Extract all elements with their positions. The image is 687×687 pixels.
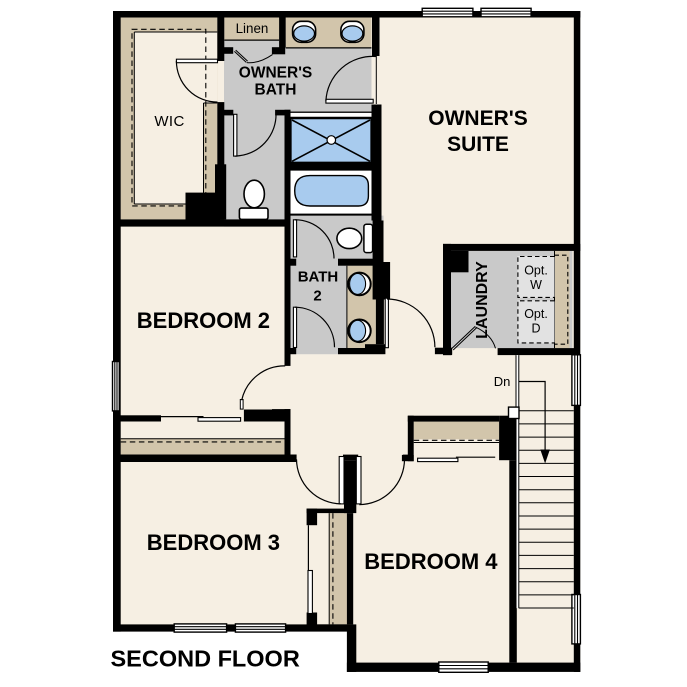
svg-text:BEDROOM 4: BEDROOM 4 — [364, 549, 498, 574]
svg-text:D: D — [531, 322, 540, 336]
svg-text:LAUNDRY: LAUNDRY — [474, 261, 491, 339]
svg-text:SUITE: SUITE — [447, 133, 509, 156]
svg-text:BEDROOM 3: BEDROOM 3 — [147, 530, 280, 555]
svg-text:BATH: BATH — [255, 81, 297, 98]
svg-text:Dn: Dn — [494, 374, 511, 389]
svg-text:SECOND FLOOR: SECOND FLOOR — [111, 646, 300, 672]
svg-text:Opt.: Opt. — [524, 264, 548, 278]
svg-text:BEDROOM 2: BEDROOM 2 — [137, 308, 270, 333]
svg-text:OWNER'S: OWNER'S — [239, 64, 312, 81]
svg-text:2: 2 — [313, 288, 321, 305]
svg-text:Opt.: Opt. — [524, 307, 548, 321]
svg-text:BATH: BATH — [298, 269, 339, 286]
svg-text:WIC: WIC — [154, 113, 184, 130]
svg-text:Linen: Linen — [236, 21, 269, 36]
svg-text:OWNER'S: OWNER'S — [428, 107, 528, 130]
svg-text:W: W — [530, 278, 542, 292]
